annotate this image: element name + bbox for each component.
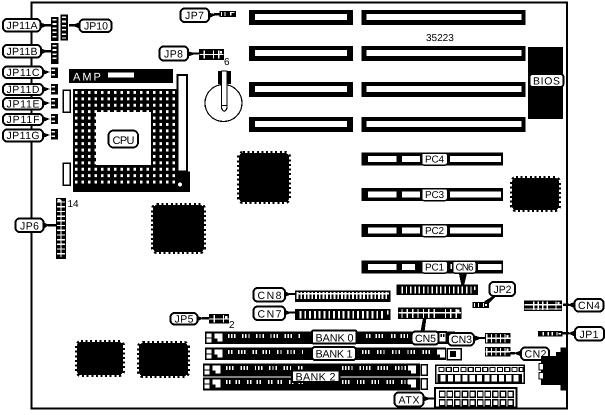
svg-text:CN6: CN6	[456, 263, 474, 274]
svg-text:JP11D: JP11D	[7, 84, 40, 96]
svg-text:JP11C: JP11C	[7, 67, 40, 79]
svg-text:JP8: JP8	[164, 49, 183, 61]
svg-text:PC2: PC2	[425, 226, 444, 237]
svg-text:BANK 1: BANK 1	[316, 349, 353, 361]
svg-text:2: 2	[229, 320, 235, 331]
svg-text:PC1: PC1	[425, 263, 444, 274]
svg-text:CPU: CPU	[113, 135, 135, 147]
svg-text:JP10: JP10	[84, 21, 108, 33]
svg-text:JP7: JP7	[185, 10, 204, 22]
svg-text:BANK 0: BANK 0	[316, 332, 354, 344]
svg-text:14: 14	[68, 199, 80, 210]
svg-text:CN3: CN3	[451, 334, 472, 346]
svg-text:JP11G: JP11G	[7, 130, 40, 142]
svg-text:JP11E: JP11E	[7, 99, 40, 111]
svg-text:AMP: AMP	[73, 72, 103, 84]
svg-text:BIOS: BIOS	[533, 76, 560, 88]
svg-text:CN4: CN4	[578, 300, 600, 312]
svg-text:JP11A: JP11A	[7, 20, 38, 32]
svg-text:PC4: PC4	[425, 155, 444, 166]
svg-text:JP2: JP2	[494, 284, 512, 296]
svg-text:JP6: JP6	[20, 221, 39, 233]
svg-text:6: 6	[224, 57, 230, 68]
svg-text:35223: 35223	[426, 33, 454, 44]
svg-text:JP5: JP5	[175, 314, 194, 326]
svg-text:CN7: CN7	[258, 309, 282, 321]
svg-text:JP11F: JP11F	[7, 114, 40, 126]
svg-text:ATX: ATX	[399, 395, 420, 407]
svg-text:JP11B: JP11B	[7, 46, 38, 58]
svg-text:CN8: CN8	[258, 290, 282, 302]
svg-text:CN5: CN5	[415, 333, 436, 345]
svg-text:BANK 2: BANK 2	[296, 371, 336, 383]
svg-text:PC3: PC3	[425, 190, 444, 201]
svg-text:JP1: JP1	[580, 329, 599, 341]
